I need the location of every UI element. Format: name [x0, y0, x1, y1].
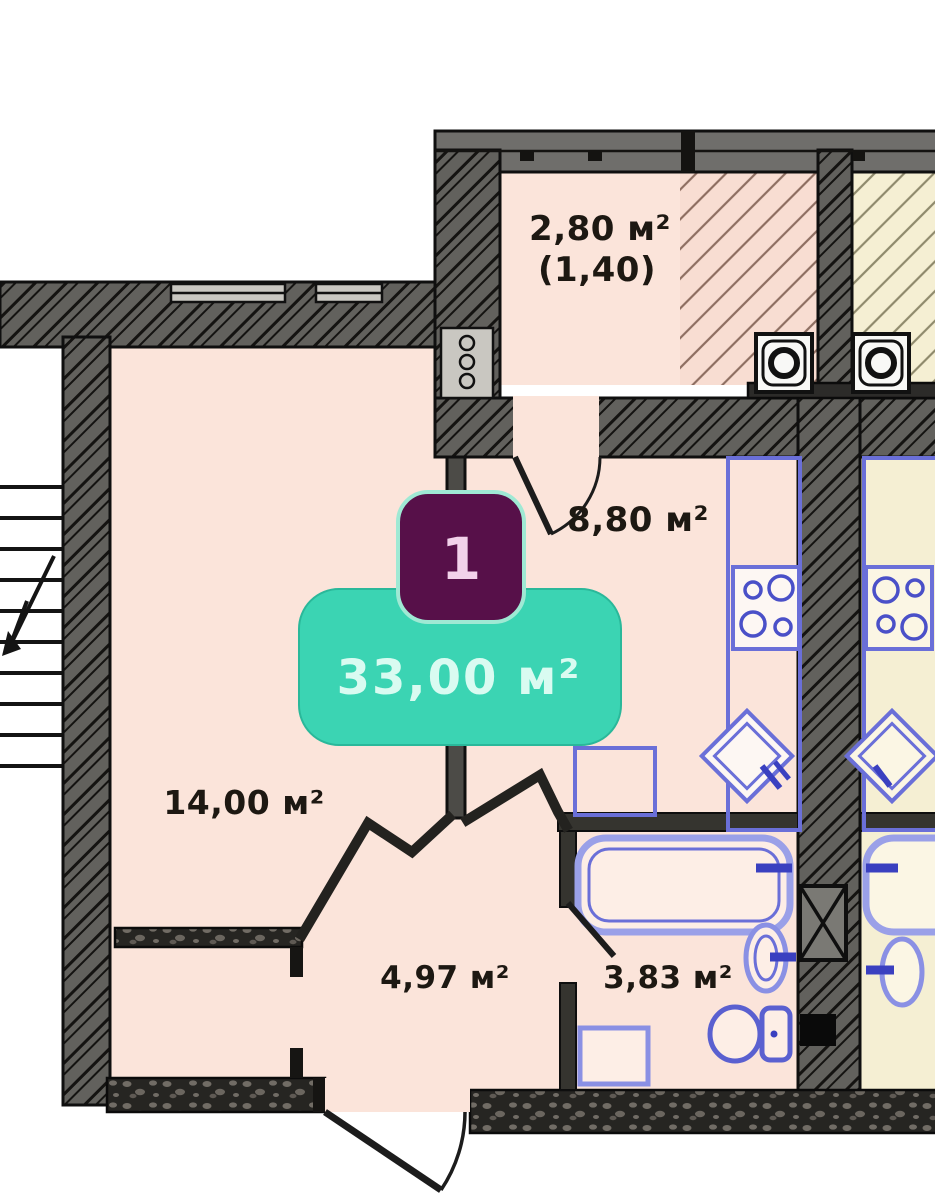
living-window-1: [171, 284, 285, 302]
wall-bottom-right: [470, 1090, 935, 1133]
shaft-solid-block: [800, 1014, 836, 1046]
wall-bath-left-lower: [560, 983, 576, 1090]
wall-bath-left-upper: [560, 831, 576, 907]
neighbor-bathtub-icon: [866, 838, 935, 932]
wall-bottom-left: [107, 1078, 325, 1112]
wall-left: [63, 337, 110, 1105]
bathtub-icon: [578, 838, 792, 932]
unit-number: 1: [441, 525, 481, 593]
wall-living-hall-partition: [115, 928, 302, 947]
balcony-door-opening: [513, 396, 599, 459]
vent-box-2: [853, 334, 909, 392]
hall-area-label: 4,97 м²: [380, 960, 510, 996]
washing-machine-slot: [580, 1028, 648, 1084]
total-area: 33,00 м²: [337, 650, 582, 706]
balcony-coeff-label: (1,40): [538, 250, 656, 290]
floor-plan: 1 33,00 м² 2,80 м² (1,40) 8,80 м² 14,00 …: [0, 0, 935, 1200]
vent-box-1: [756, 334, 812, 392]
wall-balcony-divider: [818, 150, 852, 392]
entry-door-opening: [325, 1078, 470, 1112]
bath-area-label: 3,83 м²: [603, 960, 733, 996]
balcony-area-label: 2,80 м²: [529, 209, 671, 249]
floor-plan-canvas: 1 33,00 м² 2,80 м² (1,40) 8,80 м² 14,00 …: [0, 0, 935, 1200]
stove-icon: [733, 567, 799, 649]
living-window-2: [316, 284, 382, 302]
balcony-side-window: [441, 328, 493, 398]
kitchen-area-label: 8,80 м²: [567, 500, 709, 540]
neighbor-stove-icon: [866, 567, 932, 649]
living-area-label: 14,00 м²: [163, 783, 324, 822]
wall-apartment-divider: [798, 392, 860, 1105]
toilet-icon: [710, 1007, 790, 1061]
